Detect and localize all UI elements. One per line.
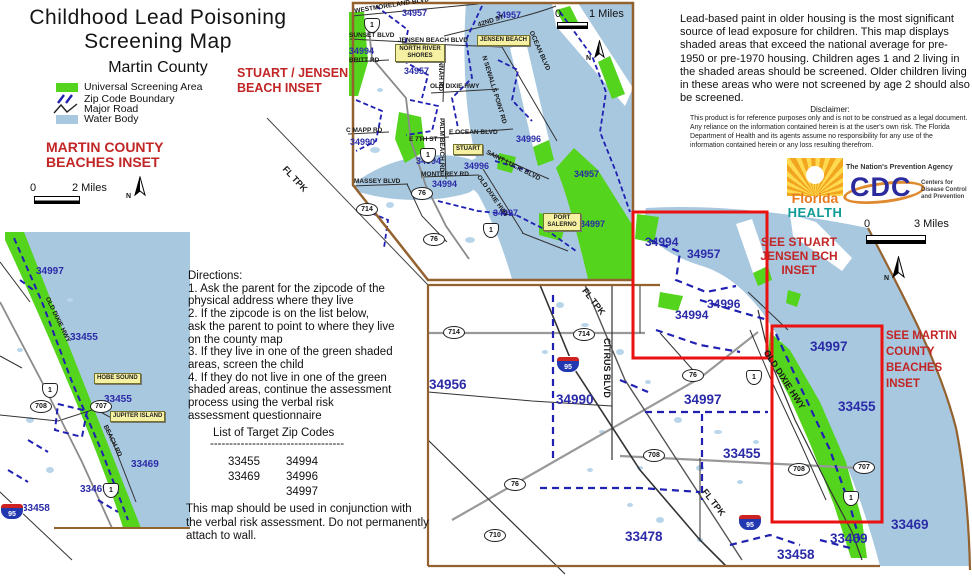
stuart-scale-zero: 0: [555, 8, 561, 20]
i95-shield: 95: [739, 515, 761, 530]
zip-list-cell: 34996: [286, 471, 318, 483]
zip-label: 34957: [574, 169, 599, 179]
road-label: CITRUS BLVD: [602, 338, 612, 398]
sr714-shield: 714: [573, 328, 595, 341]
place-label: STUART: [453, 144, 483, 155]
sr76-shield: 76: [682, 369, 704, 382]
sr708-shield: 708: [643, 449, 665, 462]
florida-health-logo-line1: Florida: [787, 192, 843, 205]
stuart-scale-bar: [557, 22, 588, 29]
sr76-shield: 76: [411, 187, 433, 200]
sr707-shield: 707: [90, 400, 112, 413]
page-title-line1: Childhood Lead Poisoning: [8, 6, 308, 30]
sr708-shield: 708: [30, 400, 52, 413]
beaches-north-arrow: N: [126, 176, 147, 200]
zip-label: 33478: [625, 529, 663, 544]
beaches-scale-bar: [34, 196, 80, 204]
sr76-shield: 76: [504, 478, 526, 491]
florida-health-logo-line2: HEALTH: [787, 205, 843, 220]
stuart-north-arrow: N: [586, 40, 606, 62]
zip-list-cell: 34997: [286, 486, 318, 498]
zip-label: 34994: [432, 179, 457, 189]
zip-label: 34994: [645, 235, 678, 249]
zip-list-cell: 33469: [228, 471, 260, 483]
zip-label: 34996: [516, 134, 541, 144]
zip-label: 34957: [687, 247, 720, 261]
disclaimer-body: This product is for reference purposes o…: [690, 114, 968, 150]
main-scale-label: 3 Miles: [914, 218, 949, 230]
directions-text: Directions: 1. Ask the parent for the zi…: [188, 270, 428, 422]
zip-list-divider: -----------------------------------: [210, 438, 344, 450]
info-paragraph: Lead-based paint in older housing is the…: [680, 13, 972, 105]
legend-label-universal: Universal Screening Area: [84, 81, 202, 93]
beaches-inset-title2: BEACHES INSET: [46, 155, 160, 170]
see-stuart-inset-note: SEE STUART JENSEN BCH INSET: [757, 235, 841, 277]
zip-label: 33469: [891, 517, 929, 532]
sr714-shield: 714: [443, 326, 465, 339]
zip-label: 34957: [402, 8, 427, 18]
map-usage-note: This map should be used in conjunction w…: [186, 503, 430, 544]
zip-label: 33455: [70, 332, 98, 343]
road-label: JENSEN BEACH BLVD: [398, 37, 468, 44]
zip-label: 34997: [810, 339, 848, 354]
beaches-scale-zero: 0: [30, 182, 36, 194]
cdc-right-text: Centers for Disease Control and Preventi…: [921, 180, 972, 201]
beaches-scale-label: 2 Miles: [72, 182, 107, 194]
sr710-shield: 710: [484, 529, 506, 542]
zip-label: 34994: [675, 308, 708, 322]
zip-label: 34990: [350, 137, 375, 147]
i95-shield: 95: [1, 504, 23, 519]
zip-label: 34957: [404, 66, 429, 76]
road-label: BRITT RD: [349, 57, 379, 64]
zip-label: 34996: [707, 297, 740, 311]
place-label: JUPITER ISLAND: [110, 411, 165, 422]
road-label: PALM BEACH RD: [438, 118, 445, 172]
zip-label: 34990: [556, 392, 594, 407]
road-label: MASSEY BLVD: [354, 178, 400, 185]
road-label: E OCEAN BLVD: [449, 129, 498, 136]
place-label: NORTH RIVER SHORES: [395, 44, 445, 62]
road-label: C MAPP RD: [346, 127, 382, 134]
stuart-inset-title1: STUART / JENSEN: [237, 66, 348, 81]
legend-swatch-water: [56, 115, 78, 124]
zip-label: 33469: [830, 531, 868, 546]
road-label: OLD DIXIE HWY: [430, 83, 479, 90]
zip-label: 34956: [429, 377, 467, 392]
screening-map-page: Childhood Lead Poisoning Screening Map M…: [0, 0, 972, 576]
road-label: MONTEREY RD: [421, 171, 469, 178]
main-scale-zero: 0: [864, 218, 870, 230]
place-label: PORT SALERNO: [543, 213, 581, 231]
stuart-scale-label: 1 Miles: [589, 8, 624, 20]
sr76-shield: 76: [423, 233, 445, 246]
i95-shield: 95: [557, 357, 579, 372]
zip-label: 33455: [723, 446, 761, 461]
zip-label: 33469: [131, 459, 159, 470]
stuart-inset-map: [267, 3, 633, 285]
cdc-logo: CDC: [850, 174, 912, 200]
cdc-tagline: The Nation's Prevention Agency: [846, 164, 953, 171]
place-label: HOBE SOUND: [94, 373, 141, 384]
page-title-line2: Screening Map: [8, 30, 308, 54]
zip-label: 34994: [349, 46, 374, 56]
beaches-inset-title1: MARTIN COUNTY: [46, 140, 163, 155]
stuart-inset-title2: BEACH INSET: [237, 81, 322, 96]
zip-label: 34997: [36, 266, 64, 277]
zip-label: 34997: [684, 392, 722, 407]
zip-label: 34996: [464, 161, 489, 171]
zip-label: 33458: [777, 547, 815, 562]
legend-swatch-universal: [56, 83, 78, 92]
zip-label: 33455: [838, 399, 876, 414]
main-scale-bar: [866, 235, 926, 244]
sr708-shield: 708: [788, 463, 810, 476]
sr707-shield: 707: [853, 461, 875, 474]
disclaimer-heading: Disclaimer:: [690, 105, 970, 114]
road-label: E 7TH ST: [409, 136, 438, 143]
legend-swatch-major-road: [53, 103, 79, 115]
zip-label: 33458: [22, 503, 50, 514]
see-beaches-inset-note: SEE MARTIN COUNTY BEACHES INSET: [886, 328, 972, 392]
road-label: SUNSET BLVD: [349, 32, 394, 39]
zip-label: 34997: [580, 219, 605, 229]
zip-list-cell: 33455: [228, 456, 260, 468]
legend-label-water: Water Body: [84, 113, 138, 125]
main-north-arrow: N: [884, 256, 906, 282]
zip-list-cell: 34994: [286, 456, 318, 468]
florida-health-sun: [806, 166, 824, 184]
sr714-shield: 714: [356, 203, 378, 216]
place-label: JENSEN BEACH: [477, 35, 530, 46]
